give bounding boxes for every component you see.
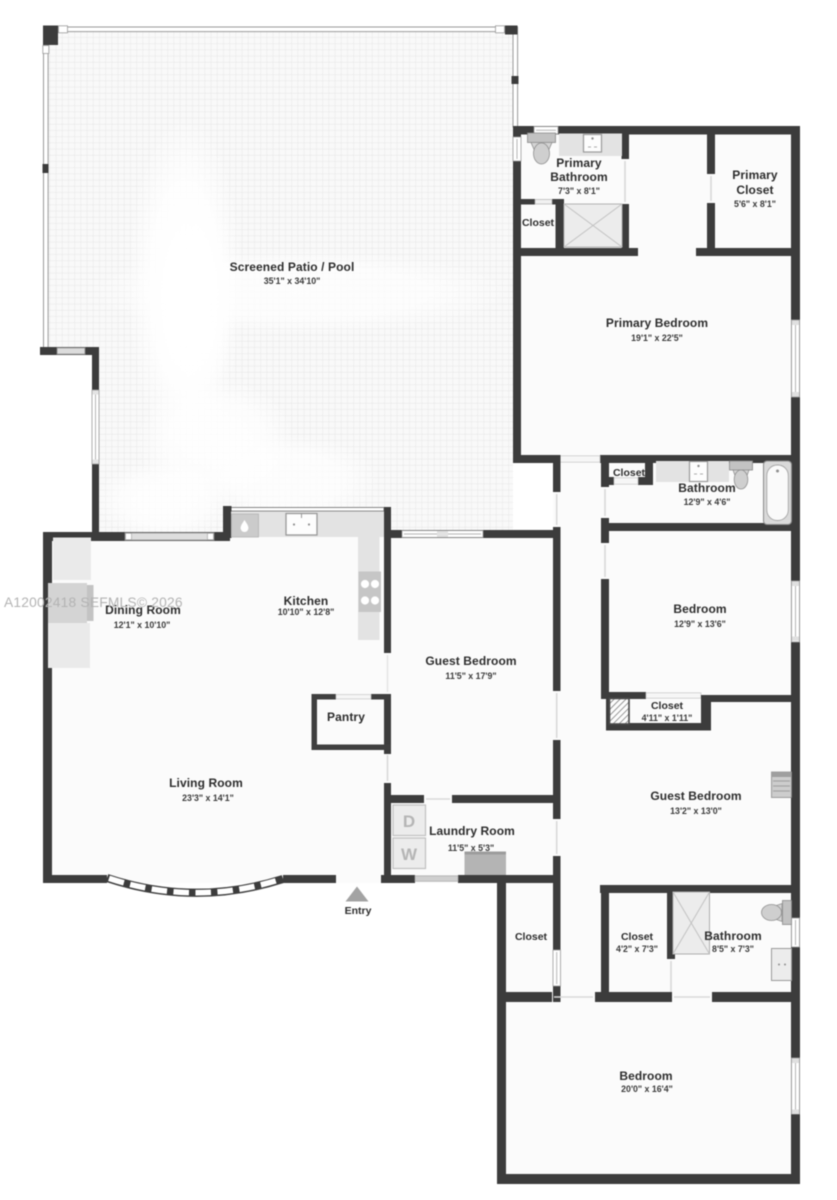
svg-text:Primary: Primary	[556, 156, 602, 170]
svg-text:Closet: Closet	[651, 700, 684, 712]
svg-text:20'0" x 16'4": 20'0" x 16'4"	[621, 1084, 673, 1094]
svg-text:4'11" x 1'11": 4'11" x 1'11"	[642, 713, 693, 723]
svg-text:D: D	[403, 812, 415, 831]
svg-text:Closet: Closet	[621, 931, 654, 943]
svg-text:12'1" x 10'10": 12'1" x 10'10"	[114, 620, 171, 630]
svg-text:12'9" x 13'6": 12'9" x 13'6"	[674, 619, 726, 629]
svg-text:Kitchen: Kitchen	[284, 594, 329, 608]
svg-text:7'3" x 8'1": 7'3" x 8'1"	[558, 186, 600, 196]
svg-text:10'10" x 12'8": 10'10" x 12'8"	[278, 607, 335, 617]
svg-text:13'2" x 13'0": 13'2" x 13'0"	[670, 806, 722, 816]
svg-text:Closet: Closet	[515, 931, 548, 943]
svg-text:11'5" x 5'3": 11'5" x 5'3"	[448, 843, 494, 853]
svg-text:Closet: Closet	[736, 183, 773, 197]
svg-text:8'5" x 7'3": 8'5" x 7'3"	[712, 944, 754, 954]
svg-text:4'2" x 7'3": 4'2" x 7'3"	[616, 944, 658, 954]
svg-text:Pantry: Pantry	[327, 710, 365, 724]
svg-text:Bathroom: Bathroom	[678, 481, 735, 495]
svg-text:Guest Bedroom: Guest Bedroom	[425, 654, 516, 668]
svg-text:Bedroom: Bedroom	[619, 1069, 672, 1083]
svg-text:Laundry Room: Laundry Room	[429, 824, 515, 838]
svg-text:Primary Bedroom: Primary Bedroom	[606, 316, 708, 330]
svg-text:Living Room: Living Room	[169, 776, 243, 790]
svg-text:A12002418 SEFMLS© 2026: A12002418 SEFMLS© 2026	[4, 595, 183, 610]
svg-text:Guest Bedroom: Guest Bedroom	[650, 789, 741, 803]
svg-text:Bathroom: Bathroom	[550, 170, 607, 184]
svg-text:35'1" x 34'10": 35'1" x 34'10"	[264, 276, 321, 286]
svg-text:23'3" x 14'1": 23'3" x 14'1"	[182, 793, 234, 803]
svg-text:19'1" x 22'5": 19'1" x 22'5"	[631, 333, 683, 343]
svg-text:11'5" x 17'9": 11'5" x 17'9"	[445, 671, 496, 681]
svg-text:Primary: Primary	[732, 168, 778, 182]
svg-text:Screened Patio / Pool: Screened Patio / Pool	[230, 260, 355, 274]
svg-text:Bedroom: Bedroom	[673, 602, 726, 616]
svg-text:5'6" x 8'1": 5'6" x 8'1"	[734, 199, 776, 209]
svg-text:W: W	[401, 845, 418, 864]
svg-text:Entry: Entry	[345, 905, 372, 917]
svg-text:Bathroom: Bathroom	[704, 929, 761, 943]
svg-text:12'9" x 4'6": 12'9" x 4'6"	[684, 497, 731, 507]
svg-text:Closet: Closet	[613, 467, 646, 479]
svg-text:Closet: Closet	[522, 217, 555, 229]
